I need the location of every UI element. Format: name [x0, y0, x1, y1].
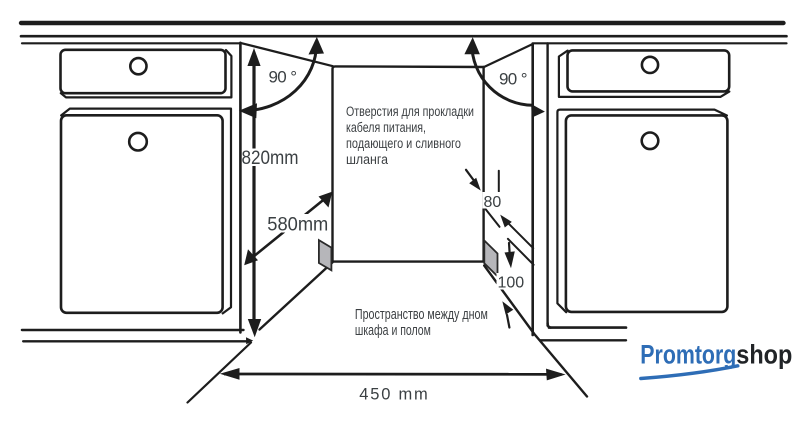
- svg-text:90 °: 90 °: [499, 70, 528, 89]
- svg-text:Promtorg: Promtorg: [640, 340, 736, 370]
- svg-text:90 °: 90 °: [269, 68, 298, 87]
- svg-text:80: 80: [484, 194, 502, 211]
- svg-text:820mm: 820mm: [242, 148, 299, 169]
- svg-text:Пространство между дном: Пространство между дном: [355, 307, 488, 323]
- svg-text:580mm: 580mm: [267, 215, 328, 236]
- svg-text:шкафа и полом: шкафа и полом: [355, 323, 431, 339]
- svg-text:450 mm: 450 mm: [359, 386, 428, 404]
- svg-text:Отверстия для прокладки: Отверстия для прокладки: [346, 104, 474, 119]
- svg-text:подающего и сливного: подающего и сливного: [346, 136, 461, 151]
- svg-text:shop: shop: [736, 340, 792, 370]
- svg-text:шланга: шланга: [346, 152, 388, 167]
- svg-text:кабеля питания,: кабеля питания,: [346, 120, 426, 135]
- svg-text:100: 100: [498, 275, 525, 292]
